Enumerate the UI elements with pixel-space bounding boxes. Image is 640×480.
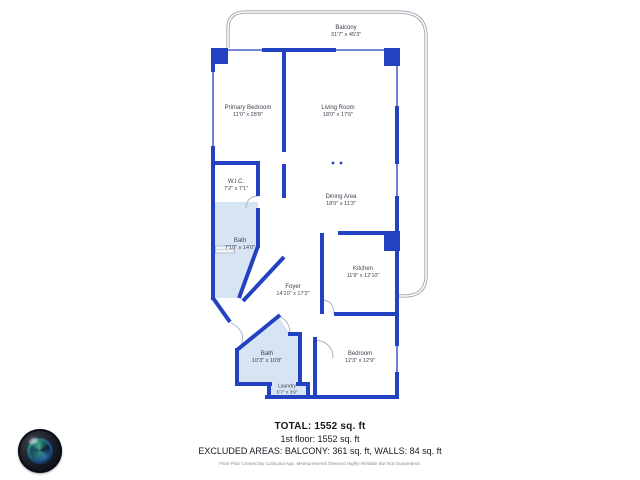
room-fills: [215, 202, 308, 397]
first-floor-area-text: 1st floor: 1552 sq. ft: [0, 434, 640, 444]
area-summary: TOTAL: 1552 sq. ft 1st floor: 1552 sq. f…: [0, 421, 640, 466]
disclaimer-text: Floor Plan Created By Cubicasa App. Meas…: [0, 461, 640, 466]
camera-lens-globe-logo-icon: [18, 429, 62, 473]
bath-vanity: [216, 246, 235, 253]
total-area-text: TOTAL: 1552 sq. ft: [0, 421, 640, 432]
opening-dots: [332, 162, 343, 165]
floor-plan-page: Balcony 31'7" x 45'3" Primary Bedroom 11…: [0, 0, 640, 480]
excluded-areas-text: EXCLUDED AREAS: BALCONY: 361 sq. ft, WAL…: [0, 446, 640, 456]
floor-plan-drawing: [0, 0, 640, 480]
